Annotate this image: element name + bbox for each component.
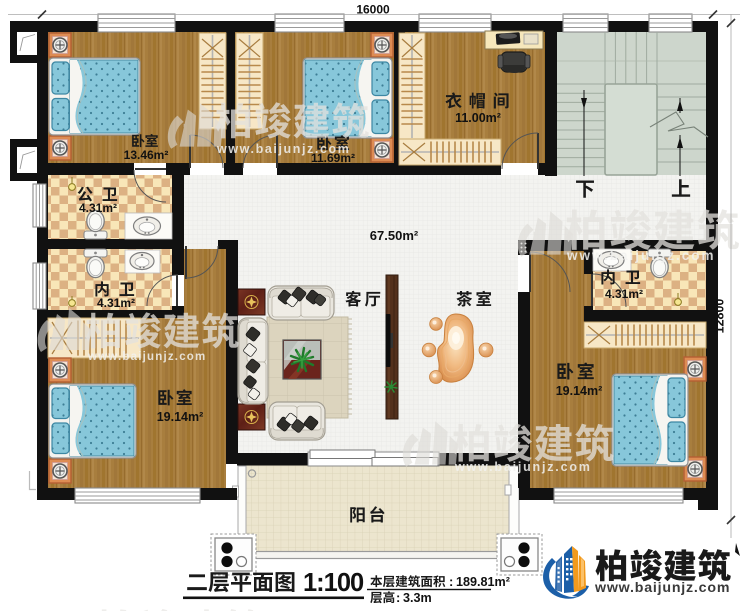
svg-text:www.baijunjz.com: www.baijunjz.com <box>454 460 592 474</box>
svg-text:16000: 16000 <box>356 3 390 17</box>
svg-text:www.baijunjz.com: www.baijunjz.com <box>216 142 350 156</box>
svg-text:11.00m²: 11.00m² <box>455 111 501 125</box>
svg-text:67.50m²: 67.50m² <box>370 228 419 243</box>
svg-text:www.baijunjz.com: www.baijunjz.com <box>87 351 206 363</box>
svg-text::: : <box>396 590 400 605</box>
svg-text:www.baijunjz.com: www.baijunjz.com <box>566 248 716 263</box>
svg-text:19.14m²: 19.14m² <box>556 384 603 398</box>
svg-text:4.31m²: 4.31m² <box>605 287 643 301</box>
svg-text:13.46m²: 13.46m² <box>124 148 169 162</box>
svg-text:12800: 12800 <box>713 299 727 334</box>
svg-text:1:100: 1:100 <box>303 569 364 597</box>
svg-text:4.31m²: 4.31m² <box>97 296 135 310</box>
svg-text:19.14m²: 19.14m² <box>157 410 204 424</box>
svg-text:www.baijunjz.com: www.baijunjz.com <box>594 580 730 596</box>
svg-text:3.3m: 3.3m <box>403 591 432 605</box>
svg-text::: : <box>449 574 453 589</box>
svg-text:189.81m²: 189.81m² <box>456 575 510 589</box>
svg-text:4.31m²: 4.31m² <box>79 201 117 215</box>
